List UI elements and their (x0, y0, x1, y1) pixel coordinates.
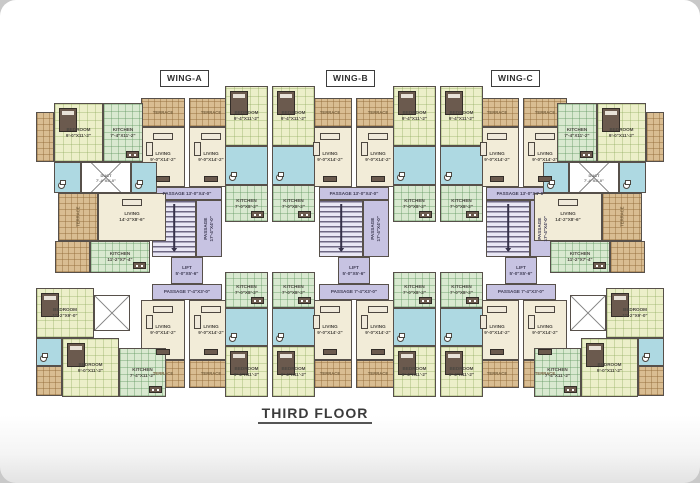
bed-icon (59, 108, 77, 132)
room-label: LIVING 14'-2"X8'-6" (119, 211, 144, 222)
room-kitchen: KITCHEN 7'-0"X8'-2" (225, 185, 268, 222)
wc-icon (642, 355, 649, 362)
bed-icon (602, 108, 620, 132)
sofa-icon (487, 133, 507, 140)
room-bathroom (225, 308, 268, 346)
bed-icon (230, 351, 248, 375)
stove-icon (126, 151, 139, 158)
sofa2-icon (361, 315, 368, 329)
room-label: LIVING 9'-0"X14'-2" (317, 151, 342, 162)
room-label: LIFT 5'-0"X5'-6" (343, 265, 366, 276)
room-living-room: LIVING 14'-2"X8'-6" (98, 193, 166, 241)
room-label: TERRACE (487, 110, 507, 115)
sofa-icon (201, 306, 221, 313)
sofa2-icon (146, 315, 153, 329)
bed-icon (277, 91, 295, 115)
room-label: TERRACE (535, 110, 555, 115)
sofa-icon (558, 199, 578, 206)
room-bedroom: BEDROOM 11'-2"X9'-0" (36, 288, 94, 338)
room-passage: PASSAGE 17'-4"X4'-0" (363, 200, 389, 257)
stove-icon (419, 211, 432, 218)
sofa2-icon (146, 142, 153, 156)
wc-icon (276, 335, 283, 342)
room-bathroom (440, 146, 483, 185)
bed-icon (398, 351, 416, 375)
wing-b-label: WING-B (326, 70, 375, 87)
bed-icon (445, 351, 463, 375)
stair-arrow-icon (340, 204, 342, 250)
room-label: LIVING 9'-0"X14'-2" (150, 324, 175, 335)
tvu-icon (204, 349, 218, 355)
room-label: LIVING 9'-0"X14'-2" (532, 324, 557, 335)
room-bathroom (272, 146, 315, 185)
wc-icon (623, 182, 630, 189)
room-label: PASSAGE 7'-4"X3'-0" (164, 289, 210, 295)
room-label: LIVING 9'-0"X14'-2" (198, 151, 223, 162)
stove-icon (251, 297, 264, 304)
bed-icon (230, 91, 248, 115)
sofa-icon (368, 133, 388, 140)
room-label: PASSAGE 17'-4"X4'-0" (370, 216, 381, 241)
tvu-icon (490, 176, 504, 182)
room-passage: PASSAGE 13'-0"X4'-0" (319, 187, 389, 200)
room-label: KITCHEN 7'-0"X8'-2" (282, 198, 305, 209)
room-label: LIVING 9'-0"X14'-2" (198, 324, 223, 335)
room-bedroom: BEDROOM 11'-2"X9'-0" (606, 288, 664, 338)
sofa-icon (535, 306, 555, 313)
room-label: PASSAGE 13'-0"X4'-0" (163, 191, 212, 197)
room-terrace (610, 241, 645, 273)
room-kitchen: KITCHEN 7'-4"X11'-2" (557, 103, 597, 162)
sofa2-icon (313, 315, 320, 329)
sofa2-icon (194, 315, 201, 329)
room-label: KITCHEN 7'-0"X8'-2" (403, 284, 426, 295)
room-label: TERRACE (368, 110, 388, 115)
room-bathroom (54, 162, 81, 193)
sofa-icon (153, 133, 173, 140)
room-kitchen: KITCHEN 11'-2"X7'-4" (550, 241, 610, 273)
room-label: LIVING 9'-0"X14'-2" (365, 151, 390, 162)
room-label: KITCHEN 7'-0"X8'-2" (235, 284, 258, 295)
room-bathroom (440, 308, 483, 346)
room-passage: PASSAGE 7'-4"X3'-0" (486, 284, 556, 300)
room-label: TERRACE (201, 110, 221, 115)
room-terrace (638, 366, 664, 396)
wc-icon (397, 335, 404, 342)
room-label: KITCHEN 11'-2"X7'-4" (567, 251, 592, 262)
room-bathroom (393, 308, 436, 346)
room-staircase (486, 200, 530, 257)
room-lift: LIFT 5'-0"X5'-6" (338, 257, 370, 284)
room-bedroom: BEDROOM 9'-0"X11'-2" (581, 338, 638, 397)
room-label: KITCHEN 7'-4"X11'-2" (110, 127, 135, 138)
tvu-icon (156, 176, 170, 182)
room-label: LIVING 9'-0"X14'-2" (365, 324, 390, 335)
room-label: LIVING 9'-0"X14'-2" (150, 151, 175, 162)
room-passage: PASSAGE 7'-4"X3'-0" (319, 284, 389, 300)
room-kitchen: KITCHEN 11'-2"X7'-4" (90, 241, 150, 273)
stair-arrow-icon (507, 204, 509, 250)
bed-icon (611, 293, 629, 317)
room-label: PASSAGE 7'-4"X3'-0" (498, 289, 544, 295)
room-label: KITCHEN 11'-2"X7'-4" (107, 251, 132, 262)
room-label: TERRACE (201, 371, 221, 376)
room-label: PASSAGE 17'-4"X4'-0" (203, 216, 214, 241)
room-terrace (646, 112, 664, 162)
stove-icon (298, 211, 311, 218)
room-kitchen: KITCHEN 7'-4"X11'-2" (534, 348, 581, 397)
room-duct (94, 295, 130, 331)
sofa2-icon (528, 142, 535, 156)
wc-icon (397, 174, 404, 181)
room-label: LIVING 9'-0"X14'-2" (484, 151, 509, 162)
room-terrace (36, 112, 54, 162)
wing-a-label: WING-A (160, 70, 209, 87)
room-bedroom: BEDROOM 9'-0"X11'-2" (597, 103, 646, 162)
bed-icon (586, 343, 604, 367)
room-label: TERRACE (320, 110, 340, 115)
room-bathroom (225, 146, 268, 185)
room-passage: PASSAGE 7'-4"X3'-0" (152, 284, 222, 300)
room-label: TERRACE (368, 371, 388, 376)
room-label: TERRACE (619, 207, 624, 227)
room-label: LIVING 14'-2"X8'-6" (555, 211, 580, 222)
room-label: LIFT 5'-0"X5'-6" (176, 265, 199, 276)
room-label: KITCHEN 7'-0"X8'-2" (403, 198, 426, 209)
tvu-icon (371, 349, 385, 355)
floor-title: THIRD FLOOR (0, 405, 630, 424)
wc-icon (276, 174, 283, 181)
room-duct: DUCT 7'-4"X5'-0" (569, 162, 619, 193)
room-bedroom: BEDROOM 9'-4"X11'-2" (225, 86, 268, 146)
room-kitchen: KITCHEN 7'-0"X8'-2" (225, 272, 268, 308)
sofa-icon (368, 306, 388, 313)
room-lift: LIFT 5'-0"X5'-6" (171, 257, 203, 284)
room-bedroom: BEDROOM 9'-0"X11'-2" (62, 338, 119, 397)
floor-title-text: THIRD FLOOR (258, 405, 373, 424)
sofa-icon (320, 306, 340, 313)
room-label: LIVING 9'-0"X14'-2" (532, 151, 557, 162)
room-label: KITCHEN 7'-4"X11'-2" (545, 367, 570, 378)
sofa2-icon (480, 142, 487, 156)
sofa2-icon (361, 142, 368, 156)
stair-arrow-icon (173, 204, 175, 250)
room-label: LIFT 5'-0"X5'-6" (510, 265, 533, 276)
bed-icon (277, 351, 295, 375)
room-terrace: TERRACE (58, 193, 98, 241)
room-bedroom: BEDROOM 9'-4"X11'-2" (393, 86, 436, 146)
bed-icon (445, 91, 463, 115)
room-label: KITCHEN 7'-4"X11'-2" (130, 367, 155, 378)
room-kitchen: KITCHEN 7'-0"X8'-2" (440, 185, 483, 222)
room-staircase (319, 200, 363, 257)
sofa2-icon (480, 315, 487, 329)
room-label: LIVING 9'-0"X14'-2" (484, 324, 509, 335)
stove-icon (466, 297, 479, 304)
room-bedroom: BEDROOM 9'-4"X11'-2" (272, 86, 315, 146)
room-bathroom (619, 162, 646, 193)
room-terrace: TERRACE (602, 193, 642, 241)
wc-icon (444, 174, 451, 181)
room-duct: DUCT 7'-4"X5'-0" (81, 162, 131, 193)
stove-icon (564, 386, 577, 393)
sofa2-icon (528, 315, 535, 329)
wc-icon (135, 182, 142, 189)
tvu-icon (490, 349, 504, 355)
room-lift: LIFT 5'-0"X5'-6" (505, 257, 537, 284)
tvu-icon (204, 176, 218, 182)
room-label: TERRACE (487, 371, 507, 376)
room-label: DUCT 7'-4"X5'-0" (584, 173, 604, 183)
room-bathroom (272, 308, 315, 346)
room-duct (570, 295, 606, 331)
stove-icon (466, 211, 479, 218)
stove-icon (419, 297, 432, 304)
room-living-room: LIVING 14'-2"X8'-6" (534, 193, 602, 241)
tvu-icon (156, 349, 170, 355)
sofa-icon (201, 133, 221, 140)
room-label: KITCHEN 7'-0"X8'-2" (450, 284, 473, 295)
wing-c-label: WING-C (491, 70, 540, 87)
room-label: PASSAGE 7'-4"X3'-0" (331, 289, 377, 295)
room-kitchen: KITCHEN 7'-0"X8'-2" (272, 272, 315, 308)
stove-icon (251, 211, 264, 218)
sofa2-icon (194, 142, 201, 156)
room-label: DUCT 7'-4"X5'-0" (96, 173, 116, 183)
room-kitchen: KITCHEN 7'-4"X11'-2" (119, 348, 166, 397)
bed-icon (41, 293, 59, 317)
sofa-icon (535, 133, 555, 140)
tvu-icon (323, 176, 337, 182)
floor-plan-page: WING-A WING-B WING-C TERRACETERRACELIVIN… (0, 0, 700, 483)
room-label: KITCHEN 7'-4"X11'-2" (564, 127, 589, 138)
bed-icon (67, 343, 85, 367)
tvu-icon (371, 176, 385, 182)
sofa-icon (487, 306, 507, 313)
stove-icon (133, 262, 146, 269)
stove-icon (298, 297, 311, 304)
tvu-icon (538, 349, 552, 355)
room-label: TERRACE (320, 371, 340, 376)
sofa-icon (320, 133, 340, 140)
room-kitchen: KITCHEN 7'-4"X11'-2" (103, 103, 143, 162)
room-bedroom: BEDROOM 9'-0"X11'-2" (54, 103, 103, 162)
room-kitchen: KITCHEN 7'-0"X8'-2" (440, 272, 483, 308)
wc-icon (229, 335, 236, 342)
room-terrace: TERRACE (141, 98, 185, 127)
tvu-icon (323, 349, 337, 355)
room-bathroom (393, 146, 436, 185)
room-label: KITCHEN 7'-0"X8'-2" (282, 284, 305, 295)
room-bathroom (131, 162, 157, 193)
stove-icon (593, 262, 606, 269)
room-bedroom: BEDROOM 9'-4"X11'-2" (225, 346, 268, 397)
stove-icon (149, 386, 162, 393)
room-kitchen: KITCHEN 7'-0"X8'-2" (393, 185, 436, 222)
stove-icon (580, 151, 593, 158)
wc-icon (58, 182, 65, 189)
room-bathroom (36, 338, 62, 366)
room-label: KITCHEN 7'-0"X8'-2" (235, 198, 258, 209)
room-bedroom: BEDROOM 9'-4"X11'-2" (272, 346, 315, 397)
room-bedroom: BEDROOM 9'-4"X11'-2" (440, 86, 483, 146)
room-label: TERRACE (153, 110, 173, 115)
room-label: LIVING 9'-0"X14'-2" (317, 324, 342, 335)
room-passage: PASSAGE 17'-4"X4'-0" (196, 200, 222, 257)
bed-icon (398, 91, 416, 115)
sofa-icon (122, 199, 142, 206)
room-terrace (36, 366, 62, 396)
sofa-icon (153, 306, 173, 313)
wc-icon (229, 174, 236, 181)
room-bedroom: BEDROOM 9'-4"X11'-2" (440, 346, 483, 397)
wc-icon (547, 182, 554, 189)
room-label: KITCHEN 7'-0"X8'-2" (450, 198, 473, 209)
room-label: PASSAGE 13'-0"X4'-0" (330, 191, 379, 197)
room-label: TERRACE (75, 207, 80, 227)
room-kitchen: KITCHEN 7'-0"X8'-2" (393, 272, 436, 308)
room-bedroom: BEDROOM 9'-4"X11'-2" (393, 346, 436, 397)
wc-icon (444, 335, 451, 342)
wc-icon (40, 355, 47, 362)
room-terrace (55, 241, 90, 273)
sofa2-icon (313, 142, 320, 156)
room-bathroom (638, 338, 664, 366)
room-kitchen: KITCHEN 7'-0"X8'-2" (272, 185, 315, 222)
